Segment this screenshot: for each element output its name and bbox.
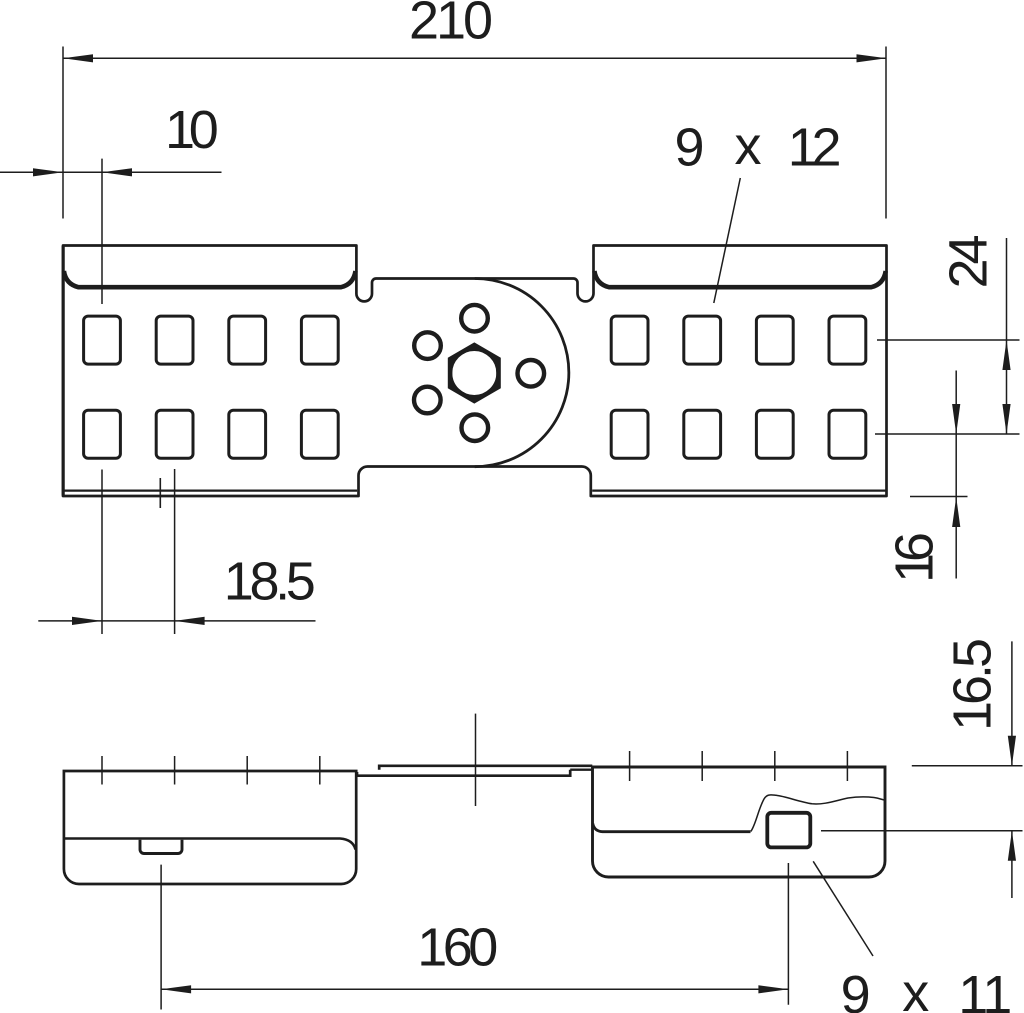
- svg-text:x: x: [735, 116, 762, 176]
- svg-text:2: 2: [811, 118, 841, 178]
- svg-text:24: 24: [939, 235, 999, 289]
- svg-text:6: 6: [885, 532, 945, 562]
- svg-text:210: 210: [409, 0, 493, 51]
- svg-text:18.5: 18.5: [224, 551, 316, 611]
- svg-text:0: 0: [189, 100, 219, 160]
- svg-text:16.5: 16.5: [943, 638, 1003, 731]
- svg-text:9: 9: [841, 965, 871, 1013]
- svg-text:9: 9: [674, 118, 704, 178]
- svg-text:160: 160: [417, 918, 498, 978]
- svg-text:1: 1: [982, 965, 1012, 1013]
- svg-text:x: x: [902, 963, 929, 1013]
